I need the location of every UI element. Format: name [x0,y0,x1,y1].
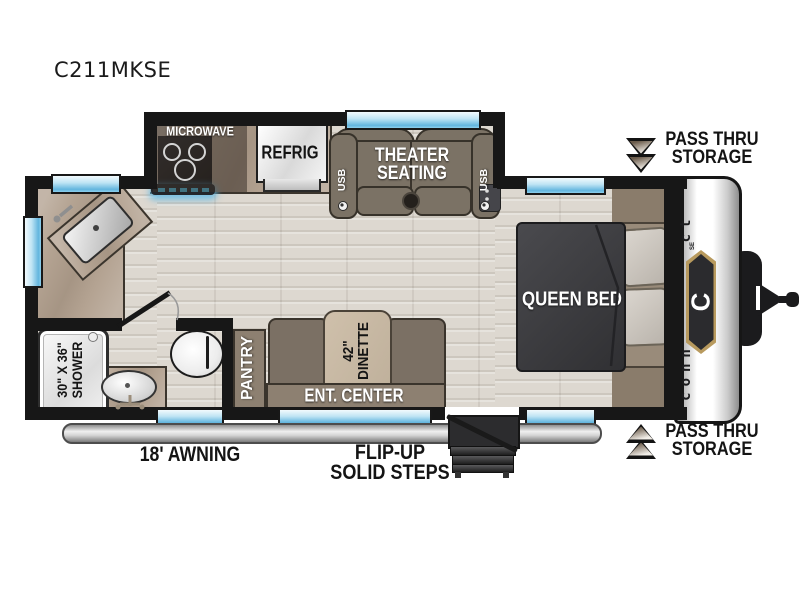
burner-icon [174,159,196,181]
floorplan-diagram: C211MKSE MICROWAVE REFRIG USB USB [0,0,800,600]
refrigerator-base [263,179,321,192]
dinette-bench [386,318,446,390]
shower-drain-icon [88,332,98,342]
sink-drain-icon [125,383,130,388]
wall-pantry [222,318,233,408]
sink-drain-icon [93,225,99,231]
window [23,216,43,288]
pass-thru-storage-top: PASS THRU STORAGE [650,131,774,167]
window [345,110,481,130]
steps-label: FLIP-UP SOLID STEPS [310,443,470,483]
burner-icon [163,143,181,161]
pass-thru-storage-bottom: PASS THRU STORAGE [650,423,774,459]
usb-indicator-icon [480,201,490,211]
wall-kitchen-side [144,112,157,189]
burner-icon [188,143,206,161]
awning [62,423,602,444]
hitch-coupler [786,292,799,307]
wall-rear [25,176,38,420]
toilet-tank-line [206,336,209,369]
hitch-jack-slot [756,286,760,310]
seat-front [414,186,472,216]
model-number: C211MKSE [54,58,171,82]
usb-indicator-icon [338,201,348,211]
window [525,176,606,195]
step-foot [503,472,509,478]
dinette-bench [268,318,329,390]
window [51,174,121,194]
cupholder-icon [402,192,420,210]
wall-bathroom-left [38,318,122,331]
toilet [170,330,224,378]
dresser-bottom [612,366,666,410]
